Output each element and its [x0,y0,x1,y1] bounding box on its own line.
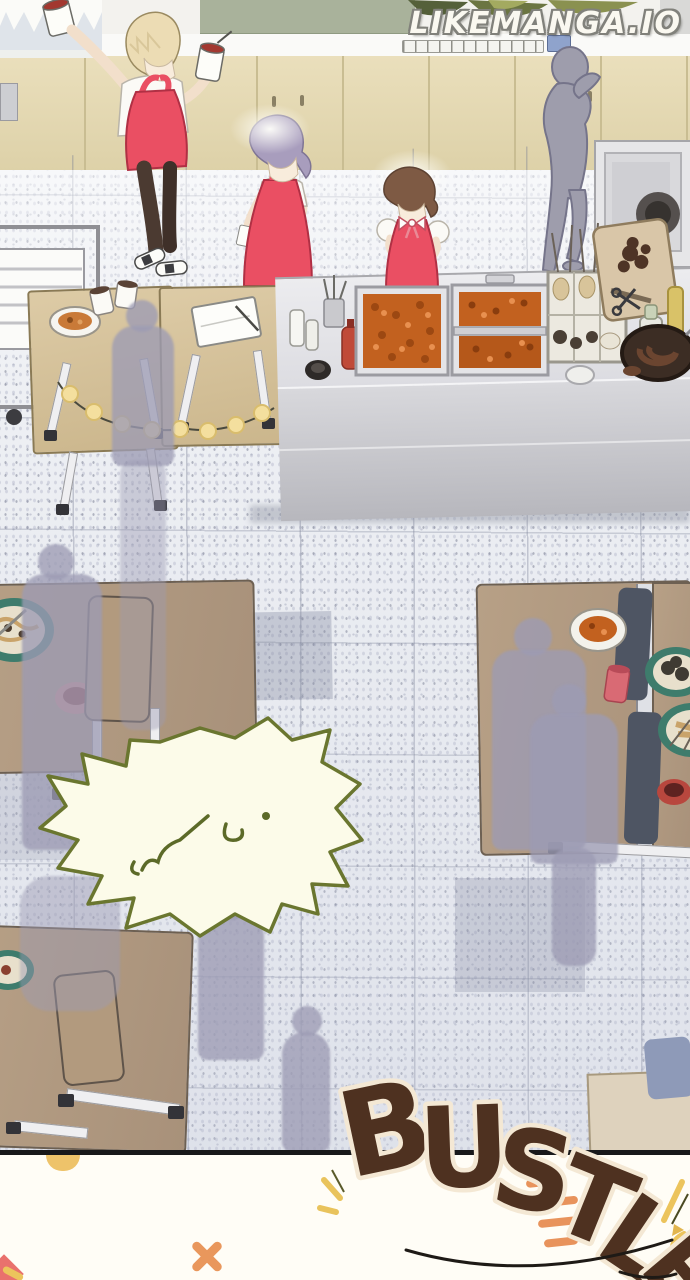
silhouette-person-leg [120,460,166,730]
sauce-pot [622,323,690,380]
drink-cup [195,26,232,82]
main-panel [0,0,690,1152]
speech-bubble [30,700,370,945]
silhouette-person [112,326,174,466]
sfx-bustle: B U S T L E [320,1010,690,1280]
site-watermark: LIKEMANGA.IO [409,6,682,41]
sfx-sparkle-left [320,1170,344,1212]
food-tray-1 [356,287,448,375]
silhouette-leg [552,848,596,966]
cutting-board [592,218,678,321]
wall-equipment [0,83,18,121]
yellow-dot-decor [46,1155,80,1171]
silhouette-person-seated [530,714,618,864]
small-bowl [566,366,594,384]
manga-page: LIKEMANGA.IO [0,0,690,1280]
food-tray-2 [452,275,548,375]
counter-items [280,215,690,515]
glow [230,104,310,154]
